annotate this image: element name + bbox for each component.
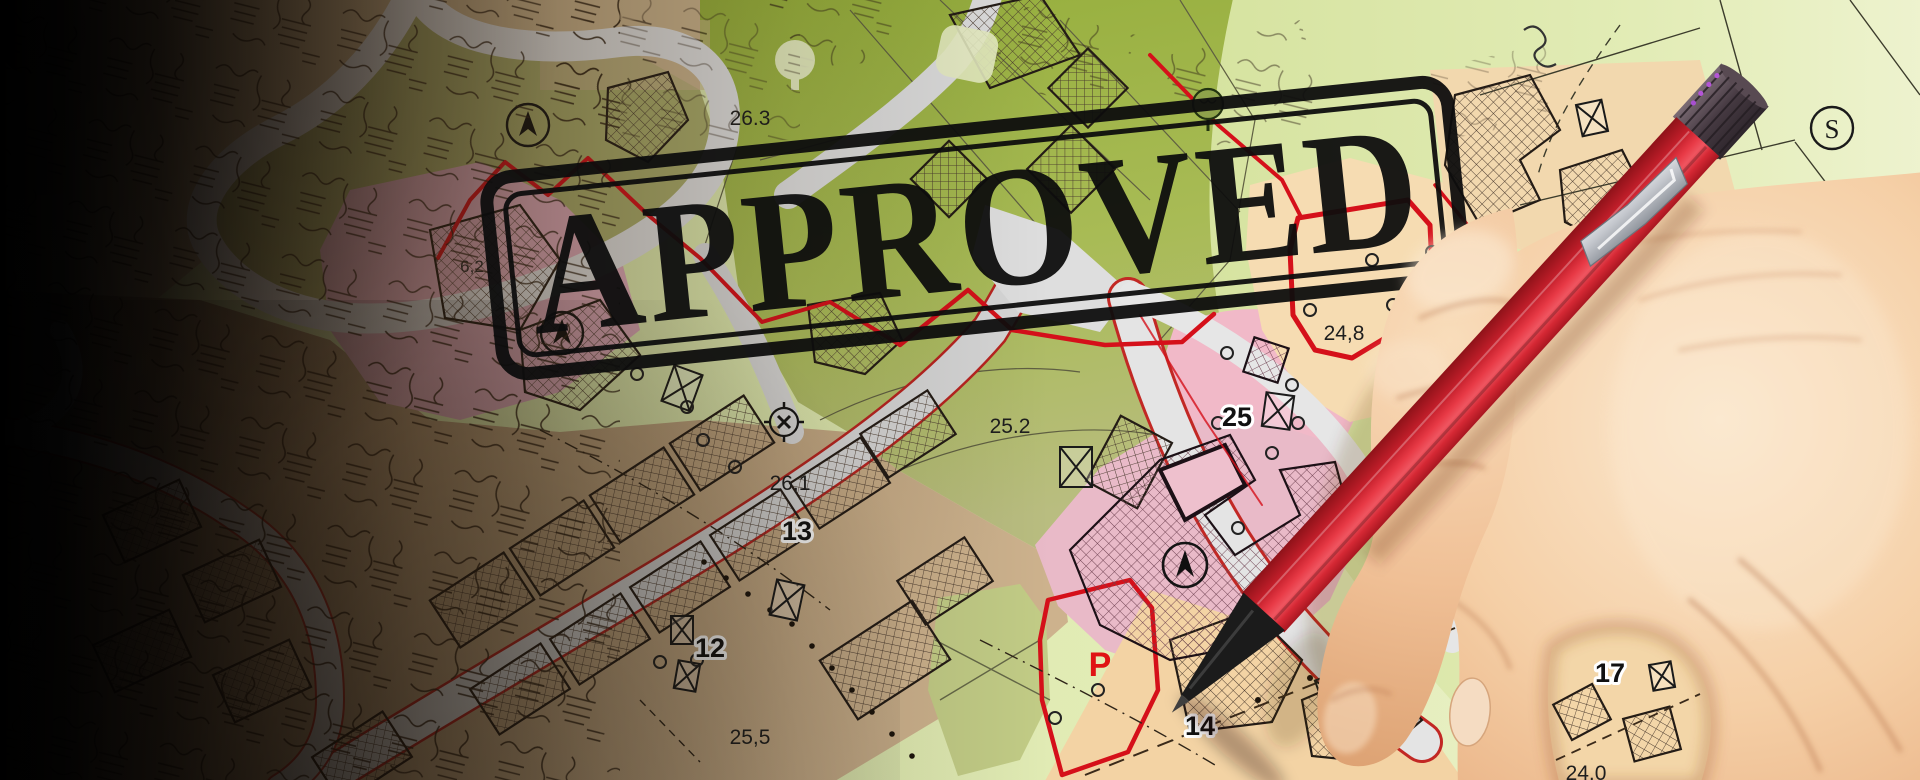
map-label-24-0: 24.0	[1566, 762, 1607, 780]
section-s-label: S	[1824, 114, 1839, 144]
utility-box-icon	[1649, 661, 1675, 690]
approved-cadastral-map-scene: S 26.3 6,2 24,8 25 25.2 26,1 13 12 25,5 …	[0, 0, 1920, 780]
map-canvas: S 26.3 6,2 24,8 25 25.2 26,1 13 12 25,5 …	[0, 0, 1920, 780]
map-gap-window: 17 24.0	[1548, 627, 1711, 780]
map-label-17: 17	[1595, 658, 1625, 688]
utility-box-icon	[1576, 100, 1608, 137]
